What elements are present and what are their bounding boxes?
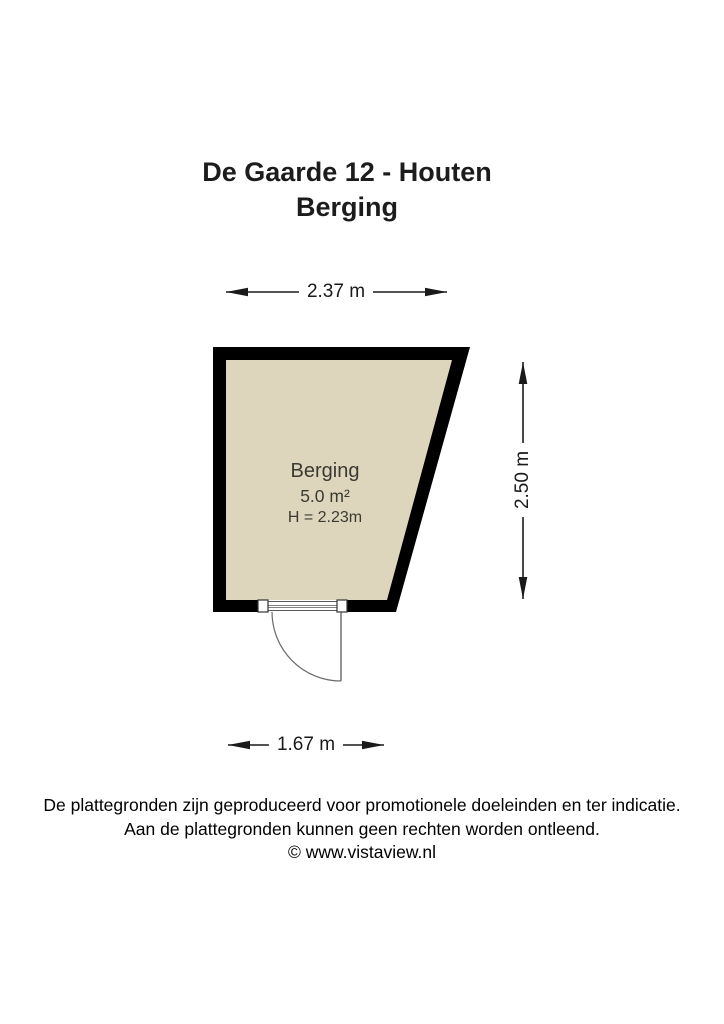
door-jamb-right (337, 600, 347, 612)
footer-line-1: De plattegronden zijn geproduceerd voor … (0, 794, 724, 818)
door-swing-arc (272, 612, 341, 681)
room-name: Berging (288, 458, 362, 485)
floorplan-page: De Gaarde 12 - Houten Berging (0, 0, 724, 1024)
room-label: Berging 5.0 m² H = 2.23m (288, 458, 362, 527)
dimension-label-top: 2.37 m (299, 281, 373, 303)
dimension-label-right: 2.50 m (512, 443, 534, 517)
door-jamb-left (258, 600, 268, 612)
footer-line-2: Aan de plattegronden kunnen geen rechten… (0, 818, 724, 842)
room-area: 5.0 m² (288, 485, 362, 508)
dimension-label-bottom: 1.67 m (269, 734, 343, 756)
footer-copyright: © www.vistaview.nl (0, 841, 724, 865)
room-ceiling-height: H = 2.23m (288, 508, 362, 527)
footer-disclaimer: De plattegronden zijn geproduceerd voor … (0, 794, 724, 865)
